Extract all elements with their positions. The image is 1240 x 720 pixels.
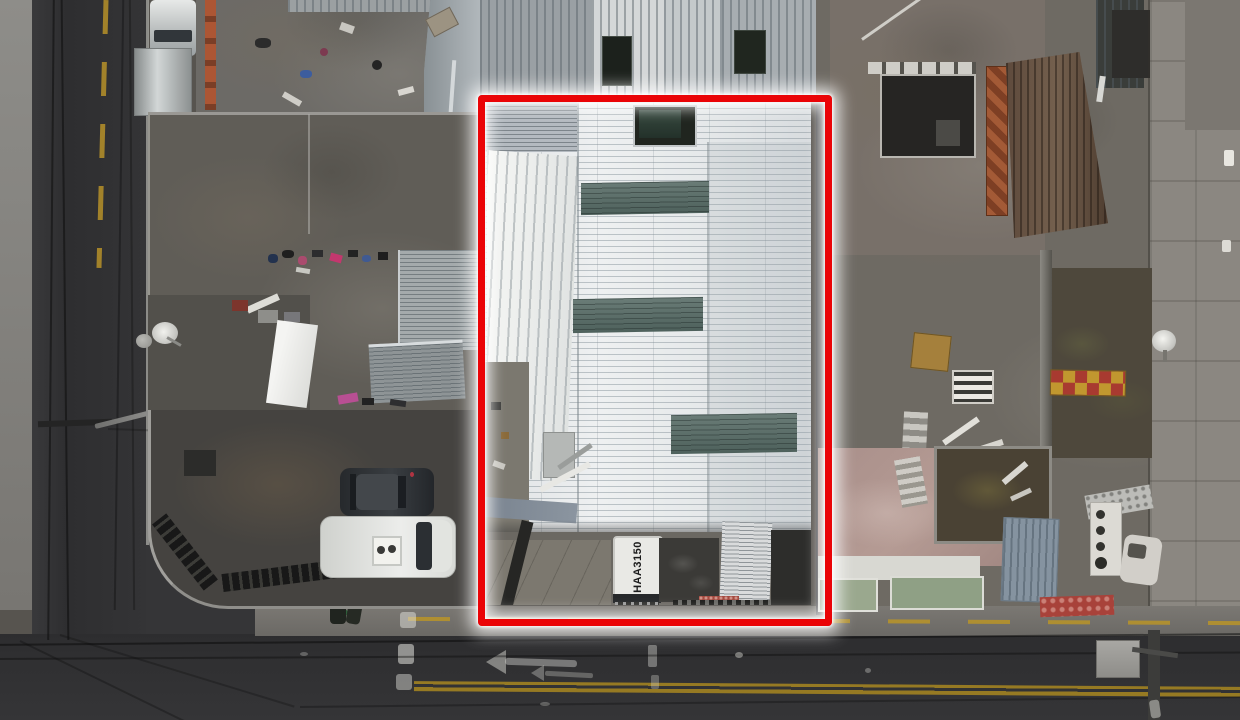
- road-speck-4: [300, 652, 308, 656]
- parapet-line-vert: [308, 114, 310, 234]
- road-speck-3: [865, 668, 871, 673]
- white-van-windshield: [416, 522, 432, 570]
- dark-car-rear-window: [398, 476, 406, 508]
- road-speck-1: [735, 652, 743, 658]
- dark-cloth-1: [362, 398, 374, 405]
- van-vent-hole-2: [388, 545, 396, 553]
- roof-skylight-opening-1: [602, 36, 632, 86]
- clutter-dot: [300, 70, 312, 78]
- dark-car-roof: [356, 474, 400, 510]
- stop-line-mark-3: [396, 674, 412, 690]
- white-speck-wall-2: [1222, 240, 1231, 252]
- vent-hole-4: [1095, 557, 1107, 569]
- corrugated-roof-mid: [398, 250, 484, 350]
- cart-window: [1127, 543, 1147, 559]
- gray-box-2: [284, 312, 300, 322]
- stop-line-mark-2: [398, 644, 414, 664]
- roof-skylight-opening-2: [734, 30, 766, 74]
- aerial-drone-photo: HAA3150: [0, 0, 1240, 720]
- laundry-item: [298, 256, 307, 265]
- laundry-item: [312, 250, 323, 257]
- window-grate: [952, 370, 994, 404]
- inner-courtyard-opening: [880, 74, 976, 158]
- white-speck-wall-1: [1224, 150, 1234, 166]
- dark-yard-right: [1052, 268, 1152, 458]
- road-mark-dash-2: [651, 675, 659, 689]
- laundry-item: [282, 250, 294, 258]
- clutter-dot: [255, 38, 271, 48]
- metal-roof-band-c: [664, 0, 722, 97]
- corrugated-shed-roof: [369, 340, 466, 404]
- green-roof-panel-2: [890, 576, 984, 610]
- property-highlight-frame: [478, 95, 832, 626]
- metal-roof-band-a: [480, 0, 592, 97]
- parapet-line-mid: [148, 112, 482, 115]
- utility-box-right: [1096, 640, 1140, 678]
- satellite-dish-right: [1152, 330, 1176, 352]
- vent-hole-2: [1096, 526, 1105, 535]
- white-wall-band-h: [868, 62, 976, 74]
- truck-box-body: [134, 48, 192, 116]
- vent-hole-1: [1096, 510, 1105, 519]
- laundry-item: [362, 255, 371, 262]
- stop-line-mark-1: [400, 612, 416, 628]
- white-cart-structure: [1119, 534, 1163, 587]
- sidewalk-left: [0, 0, 32, 610]
- worn-arrow-head-1: [486, 650, 506, 674]
- laundry-item: [378, 252, 388, 260]
- dish-mount-right: [1163, 350, 1167, 362]
- worn-arrow-head-2: [531, 665, 544, 681]
- orange-wall-strip: [205, 0, 216, 110]
- dark-table: [184, 450, 216, 476]
- red-crate: [232, 300, 248, 311]
- clutter-dot: [320, 48, 328, 56]
- laundry-item: [348, 250, 358, 257]
- road-speck-2: [540, 702, 550, 706]
- truck-windshield-parked: [154, 30, 192, 42]
- dark-car-windshield: [350, 474, 356, 510]
- clutter-dot: [372, 60, 382, 70]
- plywood-sheet: [910, 332, 952, 372]
- white-van-hood: [432, 520, 452, 572]
- road-bottom: [0, 634, 1240, 720]
- red-corrugated-awning: [1040, 595, 1115, 618]
- courtyard-reflection: [936, 120, 960, 146]
- vent-hole-3: [1096, 542, 1105, 551]
- dark-car-taillight: [410, 472, 414, 477]
- checkered-panel: [1050, 369, 1126, 396]
- laundry-item: [268, 254, 278, 263]
- gray-box: [258, 310, 278, 323]
- van-vent-hole-1: [377, 546, 385, 554]
- metal-roof-strip-top: [288, 0, 430, 12]
- wall-dark-patch: [1185, 0, 1240, 130]
- bluegray-awning: [1001, 517, 1060, 603]
- satellite-dish-small: [136, 334, 152, 348]
- orange-tile-band: [986, 66, 1008, 216]
- wall-vertical-divider: [1040, 250, 1052, 465]
